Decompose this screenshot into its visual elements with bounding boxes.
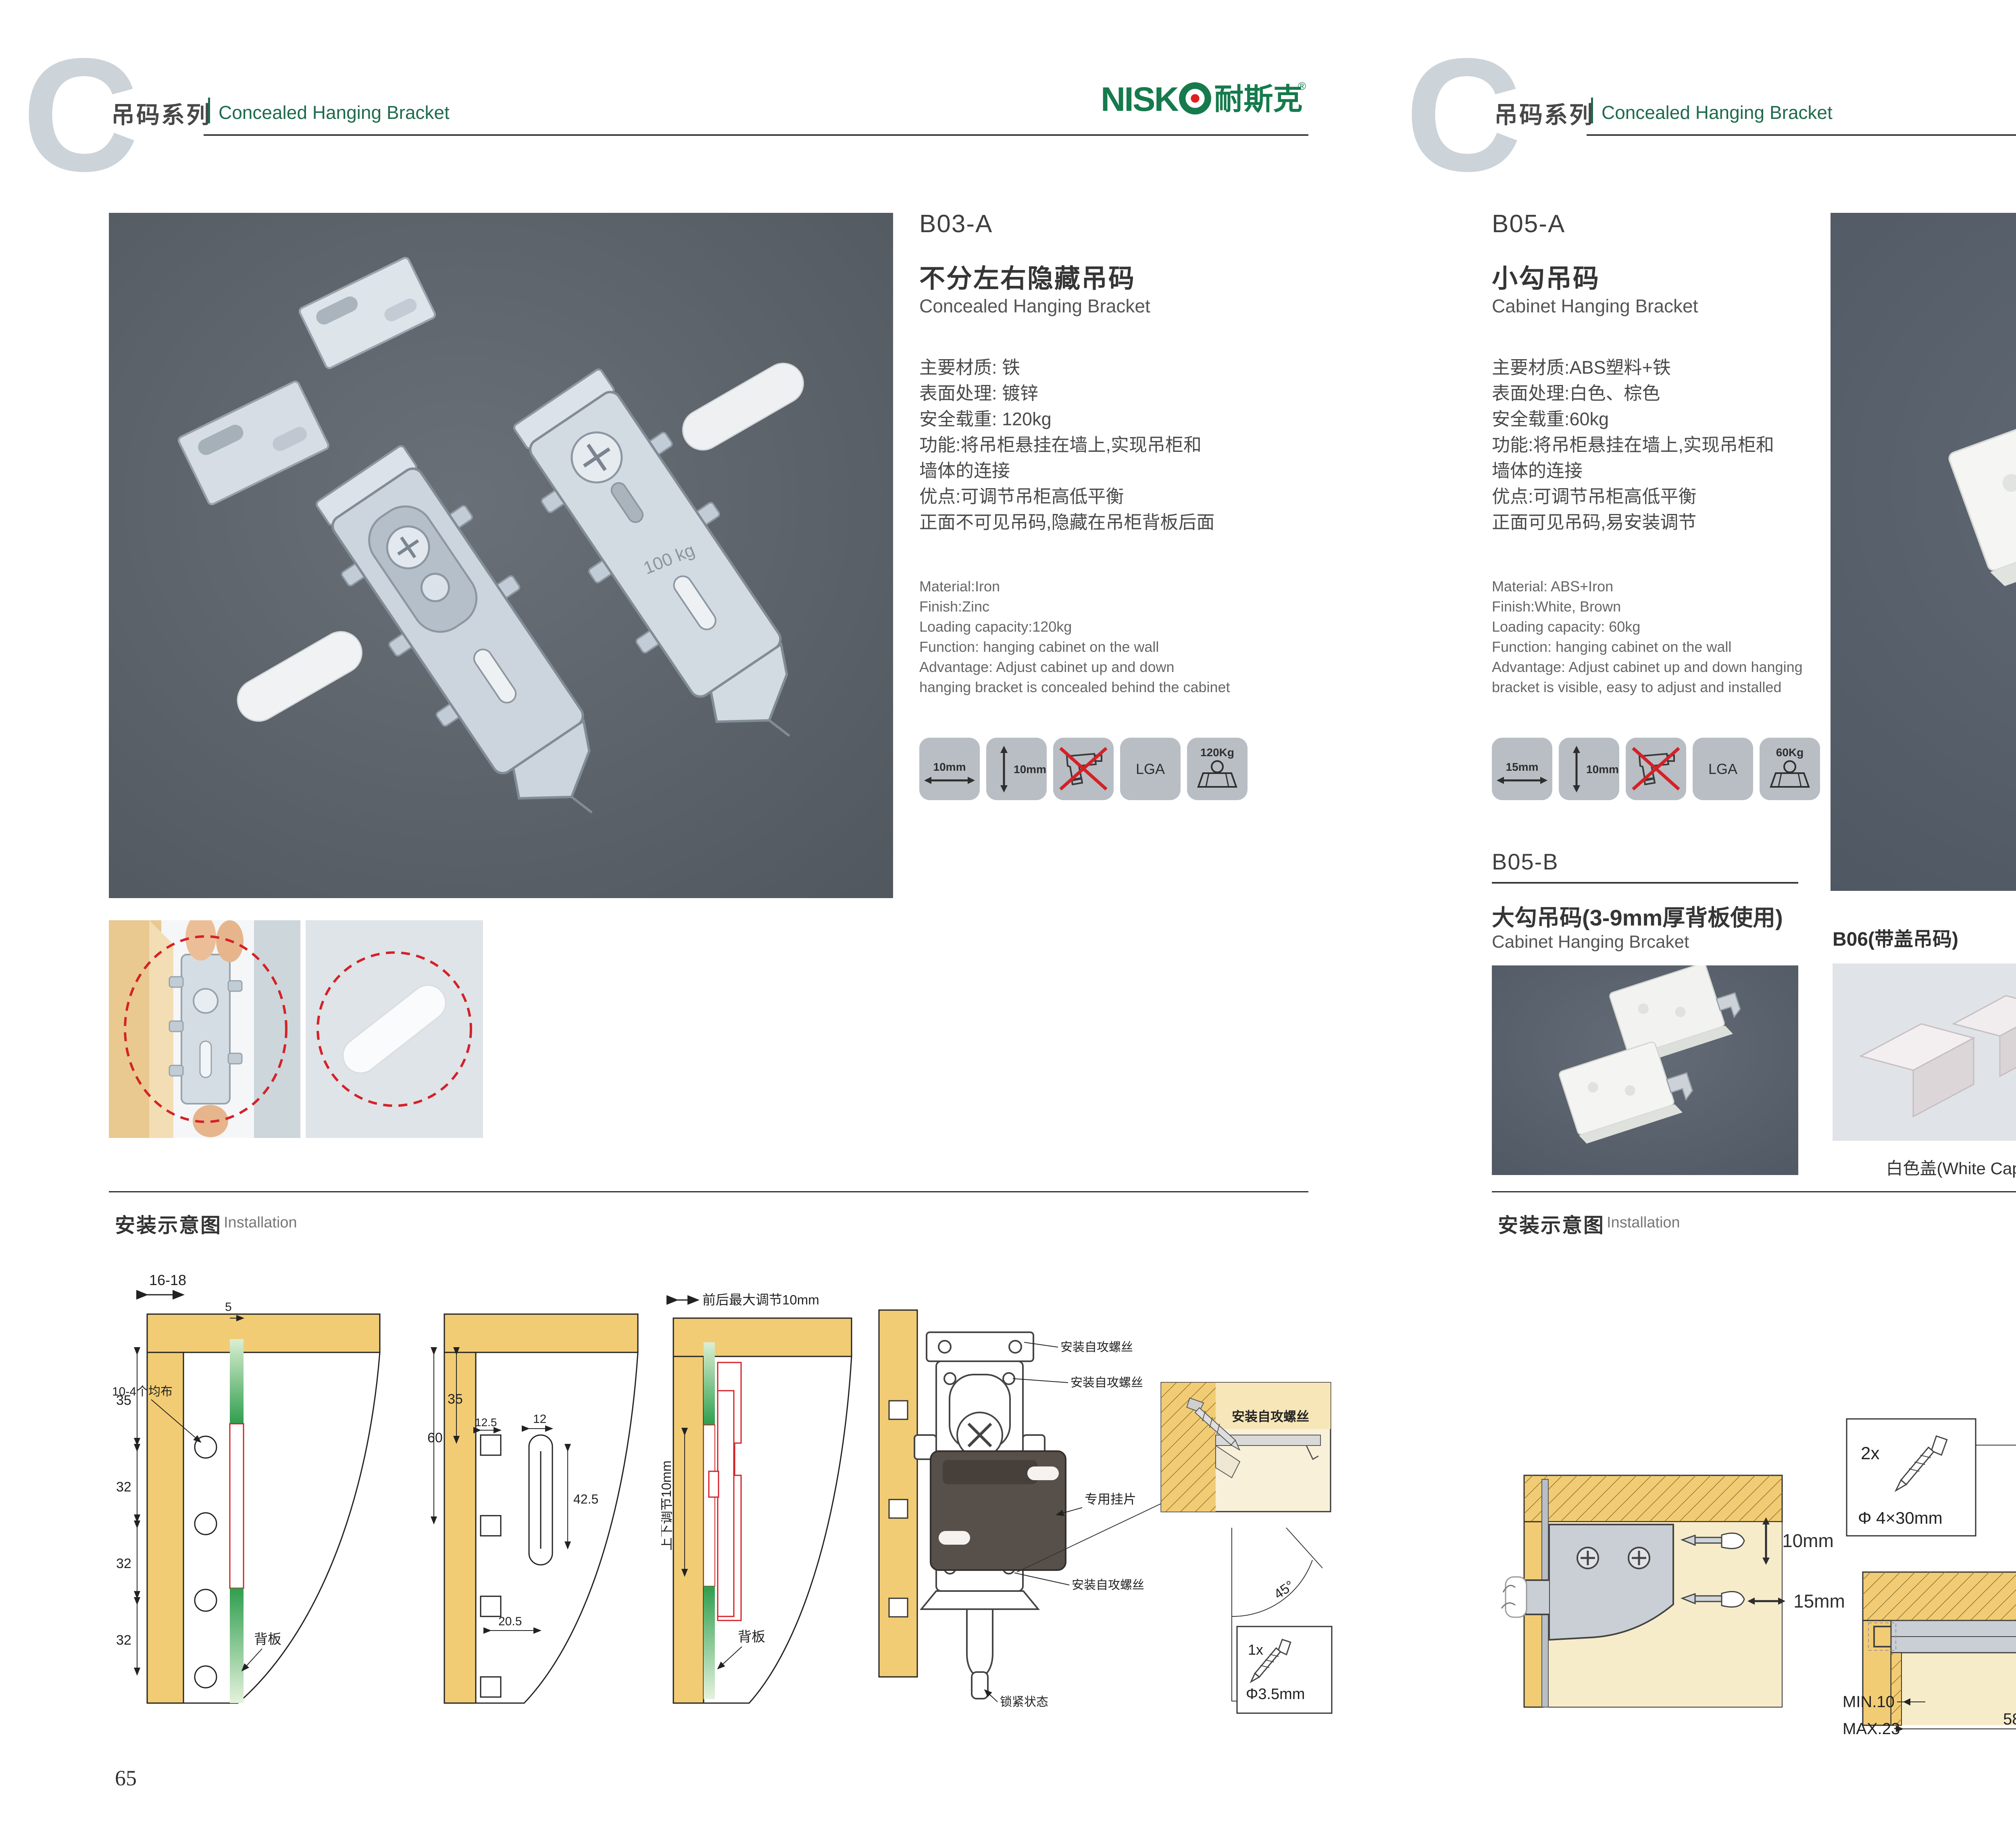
- product-code: B05-B: [1492, 849, 1559, 875]
- screw-spec-box: 1x Φ3.5mm: [1237, 1627, 1332, 1713]
- spec-line: 正面不可见吊码,隐藏在吊柜背板后面: [919, 510, 1215, 535]
- height-adjust-icon: 10mm: [986, 738, 1047, 800]
- install-title-cn: 安装示意图: [115, 1209, 222, 1238]
- lga-cert-icon: LGA: [1693, 738, 1753, 800]
- icon-label: LGA: [1708, 761, 1737, 777]
- callout-label: 锁紧状态: [1000, 1695, 1048, 1709]
- icon-label: 10mm: [933, 761, 966, 773]
- page-number: 65: [115, 1766, 137, 1791]
- icon-label: 10mm: [1014, 763, 1046, 776]
- icon-label: LGA: [1136, 761, 1165, 777]
- spec-line: 优点:可调节吊柜高低平衡: [1492, 484, 1774, 510]
- installed-bracket: [181, 955, 230, 1104]
- spec-line: Loading capacity:120kg: [919, 617, 1230, 637]
- spec-line: 功能:将吊柜悬挂在墙上,实现吊柜和: [919, 432, 1215, 458]
- header-rule: [1587, 134, 2016, 136]
- note-label: 10-4个均布: [112, 1385, 173, 1398]
- screw-qty: 1x: [1248, 1641, 1263, 1658]
- hanging-plate: [931, 1451, 1066, 1570]
- install-diagram-wall-mount: 10mm 15mm: [1500, 1419, 1863, 1725]
- install-diagram-section: 2x Φ 4×30mm MIN.10 MAX.23 58 18: [1839, 1367, 2016, 1741]
- spec-line: bracket is visible, easy to adjust and i…: [1492, 677, 1803, 697]
- product-name-en: Cabinet Hanging Bracket: [1492, 295, 1698, 317]
- spec-icon-row: 10mm 10mm LGA 120Kg: [919, 738, 1248, 800]
- callout-label: 专用挂片: [1085, 1492, 1136, 1506]
- product-name-cn: 小勾吊码: [1492, 258, 1600, 295]
- load-capacity-icon: 60Kg: [1760, 738, 1820, 800]
- icon-label: 15mm: [1506, 761, 1539, 773]
- width-adjust-icon: 10mm: [919, 738, 980, 800]
- product-code: B05-A: [1492, 210, 1565, 238]
- series-title-cn: 吊码系列: [1494, 96, 1594, 130]
- product-specs-en: Material:Iron Finish:Zinc Loading capaci…: [919, 576, 1230, 697]
- install-diagram-adjust: 前后最大调节10mm 上下调节10mm 背板: [661, 1262, 863, 1729]
- spec-line: Function: hanging cabinet on the wall: [919, 637, 1230, 657]
- brand-logo-text: NISK: [1101, 80, 1179, 118]
- dim-label: 32: [116, 1633, 131, 1648]
- load-capacity-icon: 120Kg: [1187, 738, 1248, 800]
- inset-label: 安装自攻螺丝: [1232, 1409, 1309, 1424]
- no-drill-icon: [1626, 738, 1686, 800]
- lga-cert-icon: LGA: [1120, 738, 1181, 800]
- dim-label: 15mm: [1793, 1591, 1845, 1612]
- product-name-cn: 大勾吊码(3-9mm厚背板使用): [1492, 900, 1783, 932]
- spec-line: 主要材质:ABS塑料+铁: [1492, 355, 1774, 381]
- b05a-product-photo: [1831, 213, 2016, 891]
- dim-label: 20.5: [498, 1615, 522, 1628]
- series-title-cn: 吊码系列: [111, 96, 211, 130]
- spec-line: 优点:可调节吊柜高低平衡: [919, 484, 1215, 510]
- screw-dia: Φ 4×30mm: [1858, 1508, 1943, 1527]
- header-rule: [204, 134, 1308, 136]
- screw-spec-box: 2x Φ 4×30mm: [1847, 1419, 1976, 1536]
- detail-inset: 安装自攻螺丝: [1161, 1383, 1331, 1512]
- b06-title: B06(带盖吊码): [1833, 923, 1958, 951]
- spec-line: Material: ABS+Iron: [1492, 576, 1803, 597]
- series-title-en: Concealed Hanging Bracket: [1602, 102, 1833, 123]
- dim-label: MIN.10: [1843, 1693, 1895, 1711]
- series-title-en: Concealed Hanging Bracket: [219, 102, 450, 123]
- spec-line: 功能:将吊柜悬挂在墙上,实现吊柜和: [1492, 432, 1774, 458]
- spec-icon-row: 15mm 10mm LGA 60Kg: [1492, 738, 1820, 800]
- b03a-installed-photo: [109, 920, 300, 1138]
- b05b-product-photo: [1492, 965, 1798, 1175]
- brand-logo: NISK 耐斯克 ®: [1101, 77, 1310, 122]
- screw-qty: 2x: [1861, 1443, 1879, 1463]
- icon-label: 60Kg: [1776, 746, 1804, 759]
- dim-label: MAX.23: [1843, 1720, 1900, 1738]
- spec-line: Material:Iron: [919, 576, 1230, 597]
- note-label: 上下调节10mm: [661, 1460, 674, 1551]
- width-adjust-icon: 15mm: [1492, 738, 1552, 800]
- dim-label: 12: [533, 1412, 546, 1426]
- note-label: 背板: [738, 1629, 765, 1645]
- series-separator: [1591, 98, 1593, 123]
- product-specs-cn: 主要材质: 铁 表面处理: 镀锌 安全载重: 120kg 功能:将吊柜悬挂在墙上…: [919, 355, 1215, 535]
- b03a-product-photo: 100 kg: [109, 213, 893, 898]
- height-adjust-icon: 10mm: [1559, 738, 1619, 800]
- note-label: 背板: [254, 1632, 281, 1647]
- hook-cover: [1506, 1577, 1527, 1617]
- product-name-cn-red: (3-9mm厚背板使用): [1582, 905, 1783, 930]
- callout-label: 安装自攻螺丝: [1070, 1376, 1143, 1389]
- callout-label: 安装自攻螺丝: [1060, 1341, 1133, 1354]
- spec-line: 墙体的连接: [919, 458, 1215, 484]
- dim-label: 16-18: [149, 1272, 186, 1288]
- spec-line: 安全载重: 120kg: [919, 406, 1215, 432]
- cap-label: 白色盖(White Cap): [1833, 1155, 2016, 1179]
- spec-line: hanging bracket is concealed behind the …: [919, 677, 1230, 697]
- install-diagram-side-slot: 60 35 12.5 12 42.5 20.5: [427, 1262, 653, 1729]
- dim-label: 10mm: [1782, 1530, 1834, 1551]
- no-drill-icon: [1053, 738, 1114, 800]
- install-diagram-side-holes: 16-18 5 35 32 32 32 10-4个均布 背板: [109, 1262, 419, 1729]
- spec-line: 表面处理: 镀锌: [919, 381, 1215, 406]
- spec-line: Function: hanging cabinet on the wall: [1492, 637, 1803, 657]
- product-specs-en: Material: ABS+Iron Finish:White, Brown L…: [1492, 576, 1803, 697]
- callout-label: 安装自攻螺丝: [1072, 1579, 1144, 1592]
- white-cap-photo: [1833, 963, 2016, 1141]
- dim-label: 58: [2003, 1710, 2016, 1728]
- note-label: 前后最大调节10mm: [702, 1292, 819, 1307]
- spec-line: Finish:White, Brown: [1492, 597, 1803, 617]
- dim-label: 32: [116, 1556, 131, 1571]
- spec-line: Finish:Zinc: [919, 597, 1230, 617]
- brand-logo-red-dot: [1191, 94, 1199, 102]
- spec-line: Advantage: Adjust cabinet up and down: [919, 657, 1230, 677]
- dim-label: 32: [116, 1479, 131, 1495]
- spec-line: 安全载重:60kg: [1492, 406, 1774, 432]
- dim-label: 12.5: [475, 1416, 497, 1429]
- install-title-en: Installation: [1607, 1214, 1680, 1231]
- icon-label: 10mm: [1586, 763, 1619, 776]
- product-name-cn-black: 大勾吊码: [1492, 905, 1582, 930]
- product-name-cn: 不分左右隐藏吊码: [919, 258, 1135, 295]
- spec-line: 正面可见吊码,易安装调节: [1492, 510, 1774, 535]
- spec-line: 主要材质: 铁: [919, 355, 1215, 381]
- icon-label: 120Kg: [1200, 746, 1234, 759]
- product-code: B03-A: [919, 210, 993, 238]
- spec-line: Loading capacity: 60kg: [1492, 617, 1803, 637]
- b03a-cap-photo: [306, 920, 483, 1138]
- spec-line: 墙体的连接: [1492, 458, 1774, 484]
- dim-label: 5: [225, 1300, 232, 1314]
- section-divider: [109, 1191, 1308, 1192]
- screw-dia: Φ3.5mm: [1246, 1686, 1305, 1703]
- spec-line: Advantage: Adjust cabinet up and down ha…: [1492, 657, 1803, 677]
- product-name-en: Concealed Hanging Bracket: [919, 295, 1150, 317]
- install-diagram-front: 安装自攻螺丝 安装自攻螺丝 专用挂片 安装自攻螺丝 锁紧状态 安装自攻螺丝 45…: [867, 1262, 1343, 1729]
- dim-label: 35: [448, 1391, 463, 1407]
- product-specs-cn: 主要材质:ABS塑料+铁 表面处理:白色、棕色 安全载重:60kg 功能:将吊柜…: [1492, 355, 1774, 535]
- install-title-cn: 安装示意图: [1498, 1209, 1605, 1238]
- product-name-en: Cabinet Hanging Brcaket: [1492, 932, 1689, 952]
- spec-line: 表面处理:白色、棕色: [1492, 381, 1774, 406]
- brand-reg-mark: ®: [1298, 80, 1306, 92]
- section-divider: [1492, 1191, 2016, 1192]
- brand-logo-cn: 耐斯克: [1214, 83, 1303, 116]
- code-underline: [1492, 882, 1798, 884]
- install-title-en: Installation: [224, 1214, 297, 1231]
- dim-label: 45°: [1271, 1578, 1297, 1602]
- series-separator: [208, 98, 210, 123]
- dim-label: 42.5: [573, 1492, 598, 1506]
- dim-label: 60: [427, 1430, 443, 1446]
